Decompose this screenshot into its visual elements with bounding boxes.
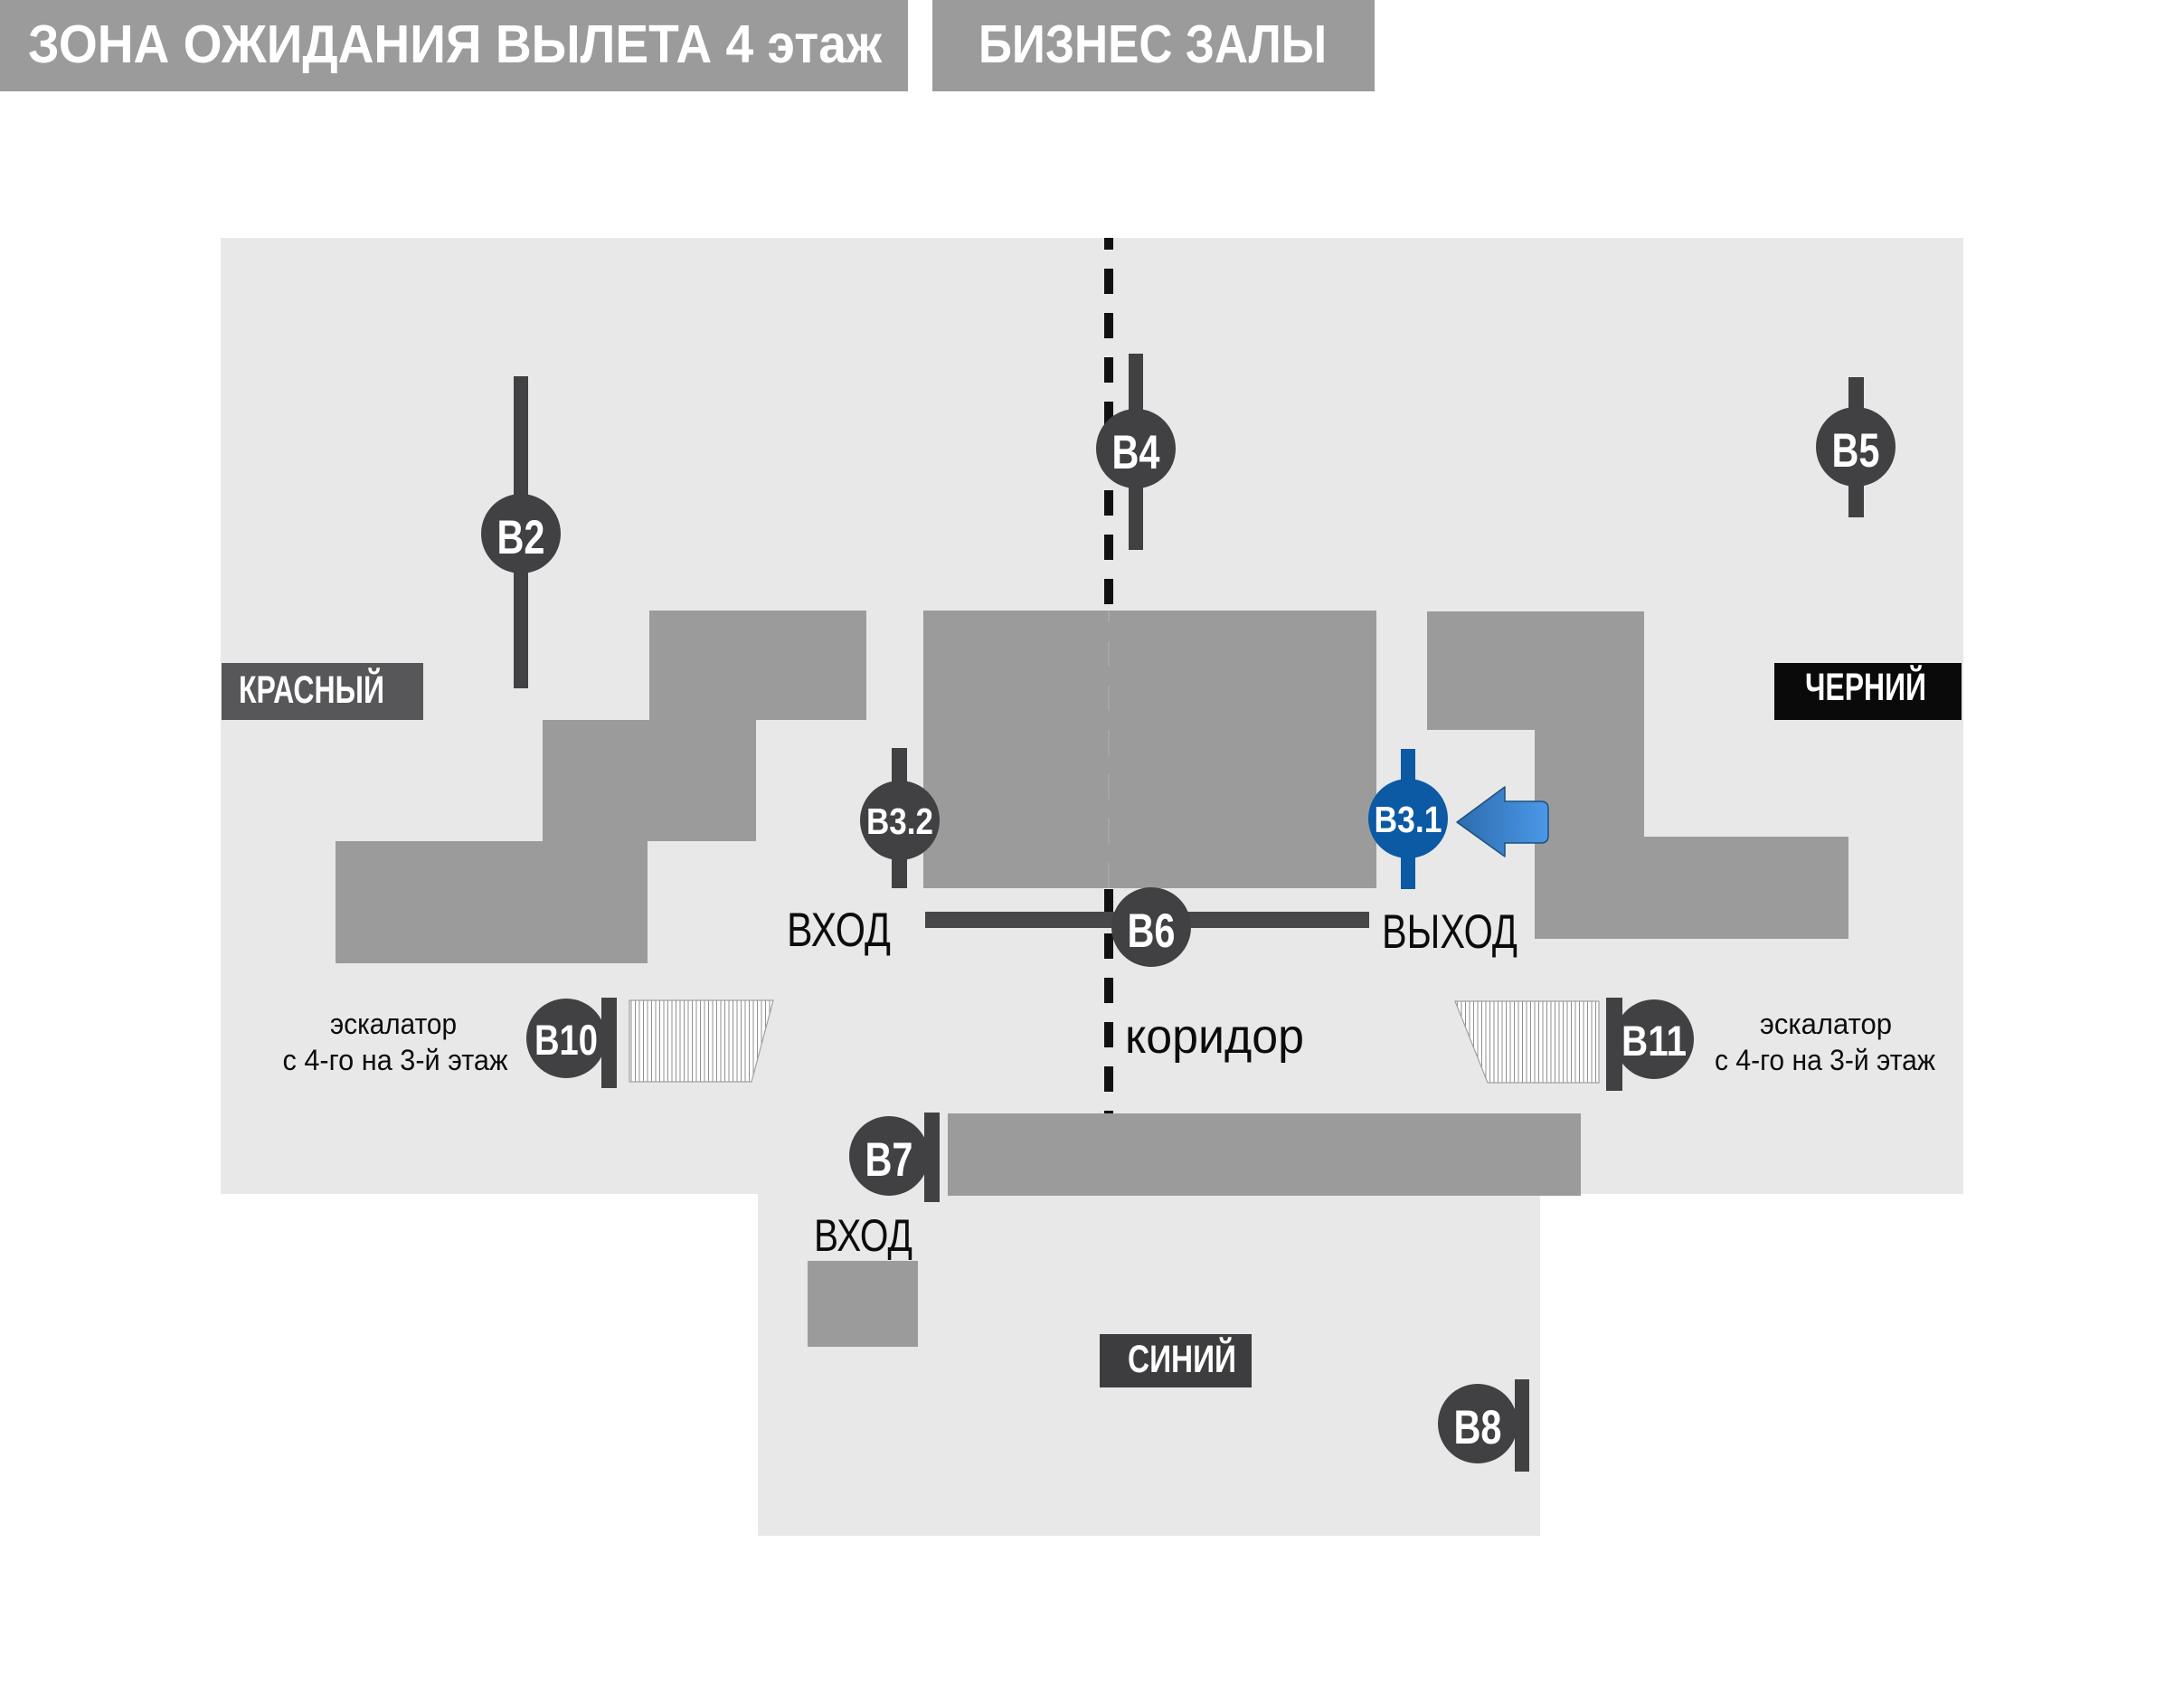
svg-text:ВЫХОД: ВЫХОД xyxy=(1382,905,1517,959)
svg-text:коридор: коридор xyxy=(1125,1009,1304,1064)
svg-text:с 4-го на 3-й этаж: с 4-го на 3-й этаж xyxy=(1715,1044,1936,1076)
svg-text:СИНИЙ: СИНИЙ xyxy=(1128,1337,1236,1381)
svg-text:В3.2: В3.2 xyxy=(866,800,933,842)
svg-text:БИЗНЕС ЗАЛЫ: БИЗНЕС ЗАЛЫ xyxy=(979,14,1327,74)
svg-text:КРАСНЫЙ: КРАСНЫЙ xyxy=(239,668,384,712)
svg-text:В4: В4 xyxy=(1112,426,1160,479)
svg-text:ЗОНА ОЖИДАНИЯ ВЫЛЕТА 4 этаж: ЗОНА ОЖИДАНИЯ ВЫЛЕТА 4 этаж xyxy=(28,14,883,74)
svg-text:эскалатор: эскалатор xyxy=(1760,1008,1892,1040)
svg-text:В3.1: В3.1 xyxy=(1375,799,1442,840)
svg-text:с 4-го на 3-й этаж: с 4-го на 3-й этаж xyxy=(283,1044,509,1076)
svg-text:эскалатор: эскалатор xyxy=(330,1008,457,1040)
svg-text:ВХОД: ВХОД xyxy=(787,904,891,957)
svg-text:В7: В7 xyxy=(865,1133,913,1187)
svg-text:В8: В8 xyxy=(1454,1401,1502,1454)
svg-text:В10: В10 xyxy=(534,1016,598,1064)
svg-text:В5: В5 xyxy=(1832,424,1880,478)
svg-text:В2: В2 xyxy=(497,511,545,564)
svg-text:В6: В6 xyxy=(1128,904,1176,958)
svg-text:ЧЕРНИЙ: ЧЕРНИЙ xyxy=(1805,665,1926,709)
svg-text:ВХОД: ВХОД xyxy=(814,1210,912,1261)
svg-text:В11: В11 xyxy=(1621,1017,1687,1065)
